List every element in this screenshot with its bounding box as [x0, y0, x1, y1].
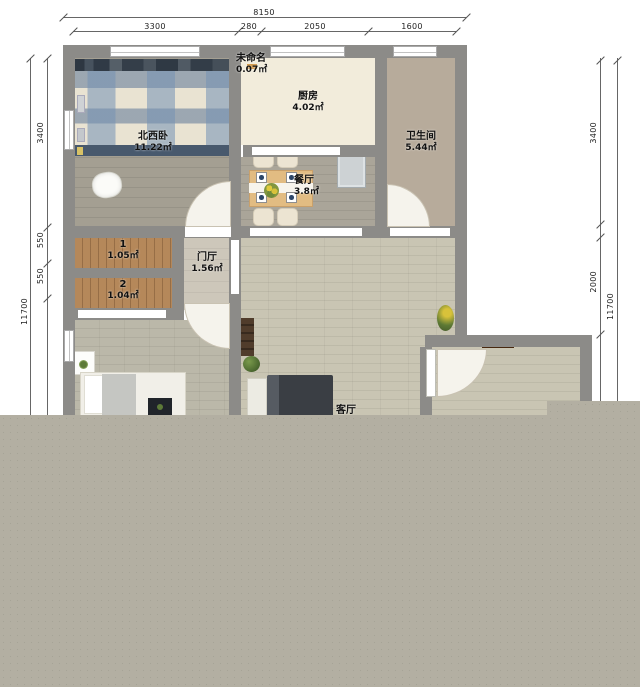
dimension-tick	[613, 56, 621, 64]
dimension-line-left-outer	[30, 58, 31, 417]
room-area: 0.07㎡	[236, 65, 280, 76]
potted-plant[interactable]	[437, 305, 454, 331]
nightstand[interactable]	[77, 128, 85, 142]
dimension-tick	[462, 13, 470, 21]
dimension-label: 550	[36, 232, 45, 248]
room-name: 2	[85, 279, 161, 291]
room-name: 餐厅	[294, 175, 344, 187]
room-label-bathroom: 卫生间 5.44㎡	[381, 131, 461, 154]
opening-closet-bottom	[78, 310, 166, 318]
opening-kitchen-dining	[252, 147, 340, 155]
dimension-tick	[596, 220, 604, 228]
dimension-line-left-inner	[47, 58, 48, 417]
dimension-tick	[43, 223, 51, 231]
window-bedroom-sw-left	[64, 330, 74, 362]
table-flowers	[264, 183, 279, 198]
room-label-closet-2: 2 1.04㎡	[85, 279, 161, 302]
gray-overlay-left	[0, 415, 547, 687]
lamp[interactable]	[77, 147, 83, 155]
room-label-entry-hall: 门厅 1.56㎡	[181, 252, 233, 275]
dimension-line-right-outer	[617, 58, 618, 401]
blanket	[102, 374, 136, 417]
dimension-label-total-height-left: 11700	[20, 298, 29, 325]
dimension-tick	[596, 330, 604, 338]
room-area: 3.8㎡	[294, 187, 344, 198]
room-label-kitchen: 厨房 4.02㎡	[258, 91, 358, 114]
wall-extension-top	[425, 335, 592, 347]
window-bedroom-top	[110, 46, 200, 57]
dimension-label: 3400	[36, 122, 45, 144]
dimension-label: 1600	[386, 22, 438, 31]
room-area: 11.22㎡	[95, 143, 211, 154]
room-name: 厨房	[258, 91, 358, 103]
bed-dark-living[interactable]	[267, 375, 333, 417]
dimension-line-right-inner	[600, 58, 601, 401]
dimension-tick	[596, 233, 604, 241]
bed-sheets-living[interactable]	[247, 378, 267, 417]
dimension-line-top-inner	[73, 31, 456, 32]
dimension-tick	[26, 54, 34, 62]
dimension-line-top-outer	[63, 17, 466, 18]
opening-bathroom	[390, 228, 450, 236]
window-bedroom-left	[64, 110, 74, 150]
room-area: 1.04㎡	[85, 291, 161, 302]
dimension-label: 550	[36, 268, 45, 284]
window-bathroom-top	[393, 46, 437, 57]
dimension-tick	[596, 56, 604, 64]
curtain-bedroom[interactable]	[75, 59, 231, 71]
dimension-tick	[43, 294, 51, 302]
wall-extension-right	[580, 347, 592, 401]
dimension-label-total-height-right: 11700	[606, 293, 615, 320]
room-name: 北西卧	[95, 131, 211, 143]
dimension-label-total-width: 8150	[238, 8, 290, 17]
wall-closet-right	[172, 238, 184, 320]
dimension-label: 2050	[288, 22, 342, 31]
gray-overlay-right	[547, 401, 640, 687]
nightstand[interactable]	[77, 95, 85, 113]
dimension-tick	[43, 54, 51, 62]
dimension-tick	[452, 27, 460, 35]
dimension-tick	[69, 27, 77, 35]
room-label-unnamed: 未命名 0.07㎡	[236, 53, 280, 76]
room-area: 1.56㎡	[181, 264, 233, 275]
dimension-label: 2000	[589, 271, 598, 293]
dimension-tick	[59, 13, 67, 21]
room-name: 未命名	[236, 53, 280, 65]
opening-dining-living	[250, 228, 362, 236]
dimension-tick	[43, 259, 51, 267]
wall-closet-divider	[75, 268, 172, 278]
wall-right	[455, 45, 467, 347]
dimension-label: 280	[232, 22, 266, 31]
floor-plan-canvas: 8150 3300 280 2050 1600 11700 3400 550 5…	[0, 0, 640, 687]
room-name: 1	[85, 239, 161, 251]
room-label-dining: 餐厅 3.8㎡	[294, 175, 344, 198]
opening-bedroom-door	[185, 227, 231, 237]
room-area: 4.02㎡	[258, 103, 358, 114]
window-kitchen-top	[270, 46, 345, 57]
potted-plant[interactable]	[243, 356, 260, 372]
door-leaf-extension[interactable]	[426, 349, 436, 397]
dimension-tick	[364, 27, 372, 35]
dining-chair[interactable]	[253, 208, 274, 226]
room-label-closet-1: 1 1.05㎡	[85, 239, 161, 262]
room-area: 5.44㎡	[381, 143, 461, 154]
room-name: 门厅	[181, 252, 233, 264]
room-area: 1.05㎡	[85, 251, 161, 262]
dimension-label: 3300	[128, 22, 182, 31]
cabinet-living[interactable]	[241, 318, 254, 356]
dining-chair[interactable]	[277, 208, 298, 226]
dining-seat-cushion[interactable]	[256, 172, 267, 183]
room-label-bedroom-nw: 北西卧 11.22㎡	[95, 131, 211, 154]
dimension-label: 3400	[589, 122, 598, 144]
room-name: 卫生间	[381, 131, 461, 143]
